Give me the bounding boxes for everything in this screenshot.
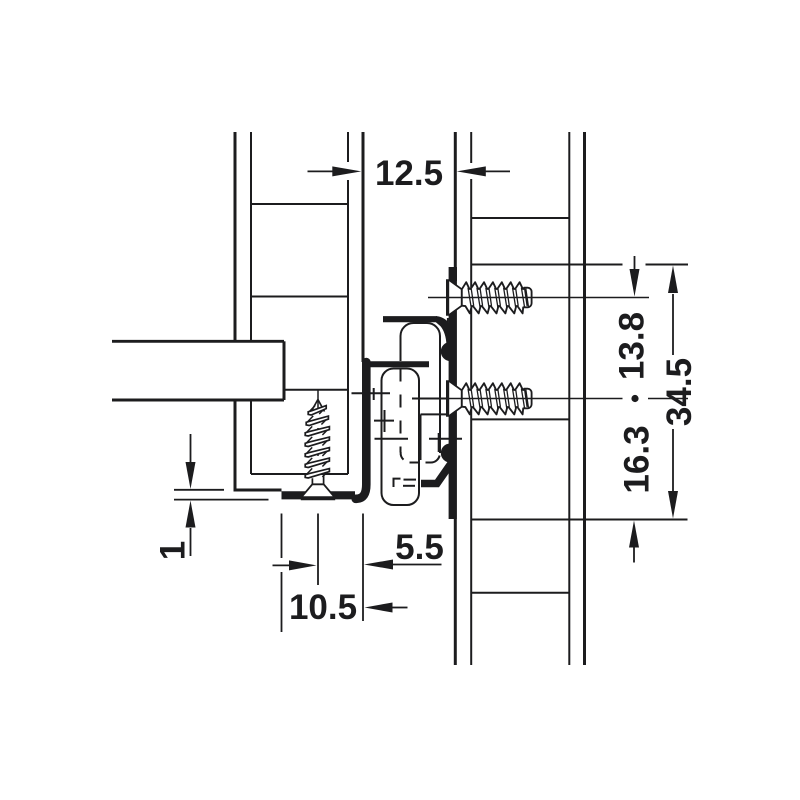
svg-text:16.3: 16.3 — [618, 425, 657, 493]
svg-text:34.5: 34.5 — [660, 358, 699, 426]
svg-text:5.5: 5.5 — [395, 528, 444, 567]
svg-text:1: 1 — [154, 541, 193, 560]
svg-text:12.5: 12.5 — [375, 154, 443, 193]
svg-text:13.8: 13.8 — [613, 312, 652, 380]
svg-text:10.5: 10.5 — [289, 588, 357, 627]
